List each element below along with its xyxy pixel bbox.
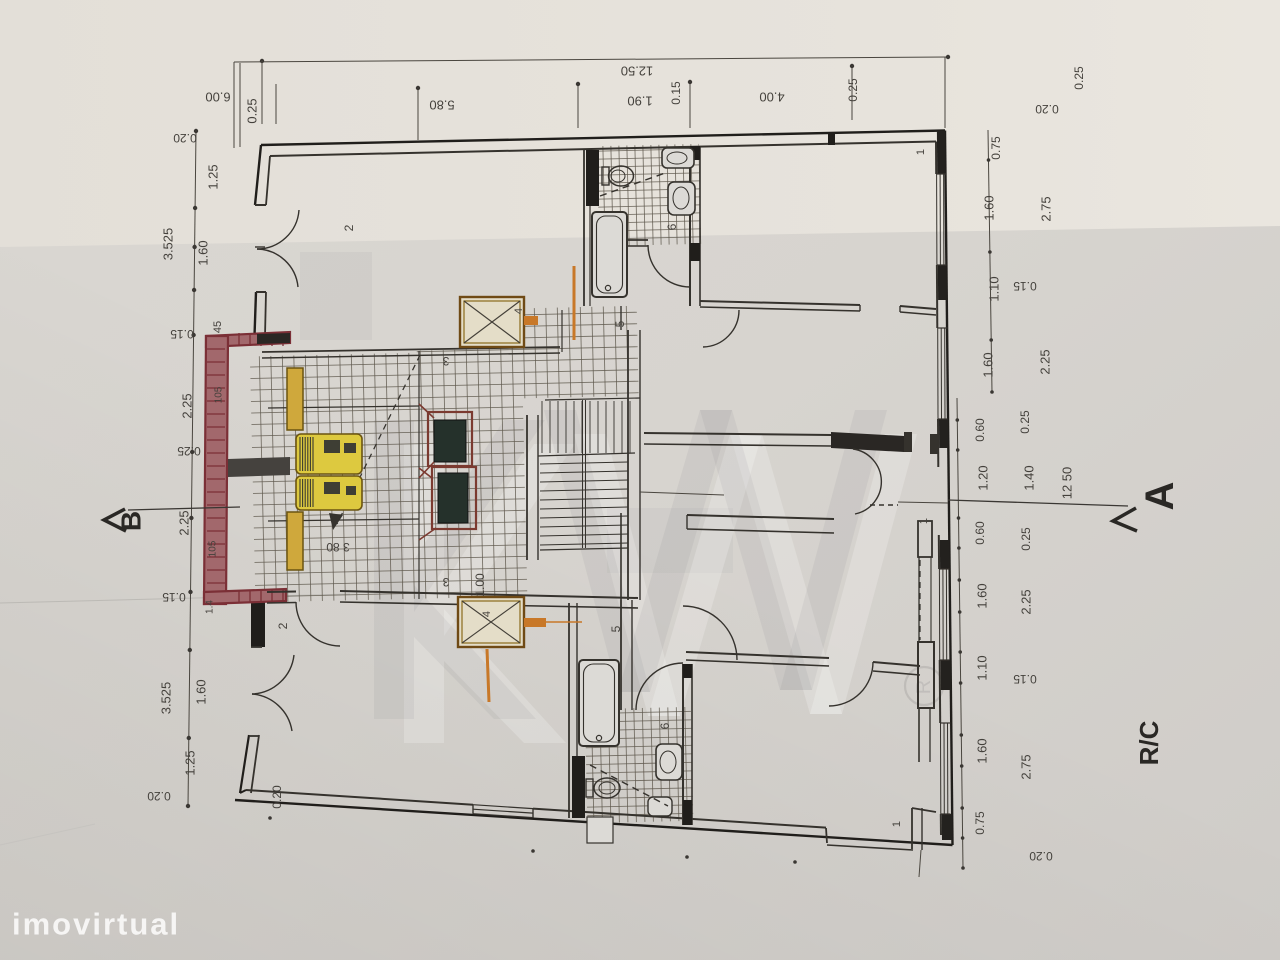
svg-text:2.25: 2.25 — [180, 393, 195, 418]
svg-text:12.50: 12.50 — [621, 64, 654, 79]
svg-text:6: 6 — [658, 722, 672, 729]
svg-text:0.25: 0.25 — [1018, 410, 1032, 434]
svg-text:0.15: 0.15 — [1013, 279, 1037, 293]
svg-text:2: 2 — [342, 224, 356, 231]
svg-text:0.15: 0.15 — [170, 327, 194, 341]
svg-text:1.25: 1.25 — [183, 750, 198, 775]
svg-text:12 50: 12 50 — [1060, 467, 1075, 500]
svg-text:0.25: 0.25 — [1019, 527, 1033, 551]
svg-text:0.20: 0.20 — [1035, 102, 1059, 116]
svg-text:A: A — [1138, 482, 1182, 511]
svg-text:1.00: 1.00 — [473, 573, 487, 597]
svg-text:3.525: 3.525 — [161, 228, 176, 261]
svg-text:1.20: 1.20 — [976, 465, 991, 490]
svg-text:1: 1 — [915, 149, 927, 155]
svg-text:0.75: 0.75 — [989, 136, 1003, 160]
svg-text:2.75: 2.75 — [1039, 196, 1054, 221]
svg-text:1.4: 1.4 — [205, 600, 216, 614]
svg-text:0.75: 0.75 — [973, 811, 987, 835]
svg-text:1.10: 1.10 — [975, 655, 990, 680]
svg-text:B: B — [116, 511, 147, 531]
svg-text:2: 2 — [276, 622, 290, 629]
svg-text:1.10: 1.10 — [987, 276, 1002, 301]
svg-text:2.25: 2.25 — [177, 510, 192, 535]
svg-text:R: R — [913, 680, 935, 694]
svg-text:0.25: 0.25 — [1072, 66, 1086, 90]
svg-text:1: 1 — [891, 821, 903, 827]
svg-text:2.25: 2.25 — [1019, 589, 1034, 614]
svg-text:3.525: 3.525 — [159, 682, 174, 715]
svg-text:6.00: 6.00 — [205, 90, 230, 105]
svg-text:6: 6 — [665, 223, 679, 230]
svg-text:1.25: 1.25 — [206, 164, 221, 189]
svg-text:0.60: 0.60 — [973, 521, 987, 545]
svg-text:1.60: 1.60 — [975, 583, 990, 608]
svg-text:0.15: 0.15 — [1013, 672, 1037, 686]
svg-text:3 80: 3 80 — [326, 540, 350, 554]
svg-text:0.20: 0.20 — [173, 131, 197, 145]
svg-text:0.60: 0.60 — [973, 418, 987, 442]
svg-text:R/C: R/C — [1134, 720, 1164, 765]
svg-text:105: 105 — [208, 540, 219, 557]
svg-text:0.25: 0.25 — [177, 444, 201, 458]
svg-text:0.15: 0.15 — [669, 81, 683, 105]
svg-text:0.15: 0.15 — [162, 590, 186, 604]
svg-text:1: 1 — [918, 518, 930, 524]
svg-text:1.60: 1.60 — [982, 195, 997, 220]
svg-text:4: 4 — [513, 308, 525, 314]
svg-text:3: 3 — [442, 575, 449, 589]
svg-text:1.60: 1.60 — [981, 352, 996, 377]
svg-text:1.90: 1.90 — [627, 94, 652, 109]
svg-text:0.20: 0.20 — [1029, 849, 1053, 863]
svg-text:1.60: 1.60 — [196, 240, 211, 265]
svg-text:1.60: 1.60 — [975, 738, 990, 763]
svg-text:4: 4 — [481, 611, 493, 617]
svg-text:1.40: 1.40 — [1022, 465, 1037, 490]
svg-text:5: 5 — [613, 320, 627, 327]
svg-text:2.75: 2.75 — [1019, 754, 1034, 779]
svg-text:5.80: 5.80 — [429, 98, 454, 113]
svg-text:1.60: 1.60 — [194, 679, 209, 704]
svg-text:0.20: 0.20 — [270, 785, 284, 809]
svg-text:105: 105 — [214, 386, 225, 403]
svg-text:3: 3 — [442, 354, 449, 368]
svg-text:imovirtual: imovirtual — [12, 907, 180, 942]
svg-text:0.25: 0.25 — [846, 78, 860, 102]
svg-text:0.25: 0.25 — [245, 98, 260, 123]
svg-text:4.00: 4.00 — [759, 90, 784, 105]
svg-text:2.25: 2.25 — [1038, 349, 1053, 374]
svg-text:0.20: 0.20 — [147, 789, 171, 803]
svg-text:5: 5 — [609, 625, 623, 632]
svg-text:45: 45 — [212, 321, 224, 333]
